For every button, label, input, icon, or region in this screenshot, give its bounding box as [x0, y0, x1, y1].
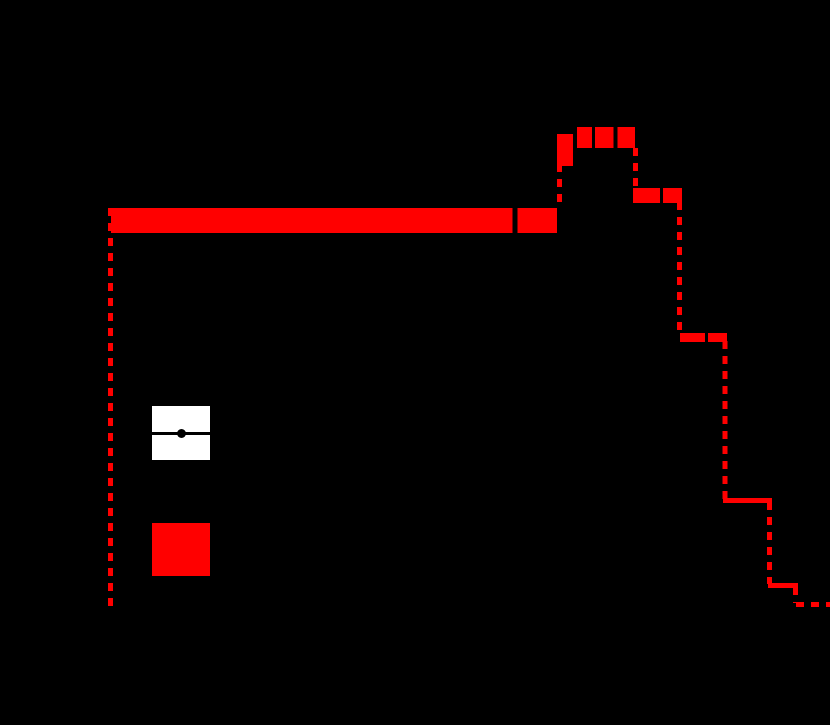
data-errorbar-mark	[614, 127, 618, 148]
legend-swatch-uncertainty-band	[152, 523, 210, 576]
legend-swatch-data-points	[152, 406, 210, 460]
uncertainty-band-rect	[111, 208, 557, 233]
data-errorbar-mark	[660, 188, 663, 203]
data-errorbar-mark	[705, 333, 708, 342]
uncertainty-band-rect	[723, 498, 772, 503]
uncertainty-band-rect	[633, 188, 682, 203]
data-errorbar-mark	[592, 127, 595, 148]
uncertainty-band-rect	[577, 127, 635, 148]
histogram-chart	[0, 0, 830, 725]
uncertainty-band-rect	[680, 333, 727, 342]
plot-area	[0, 0, 830, 725]
data-errorbar-mark	[513, 208, 518, 233]
data-errorbar-mark	[573, 134, 577, 166]
legend-data-marker-dot	[177, 429, 186, 438]
